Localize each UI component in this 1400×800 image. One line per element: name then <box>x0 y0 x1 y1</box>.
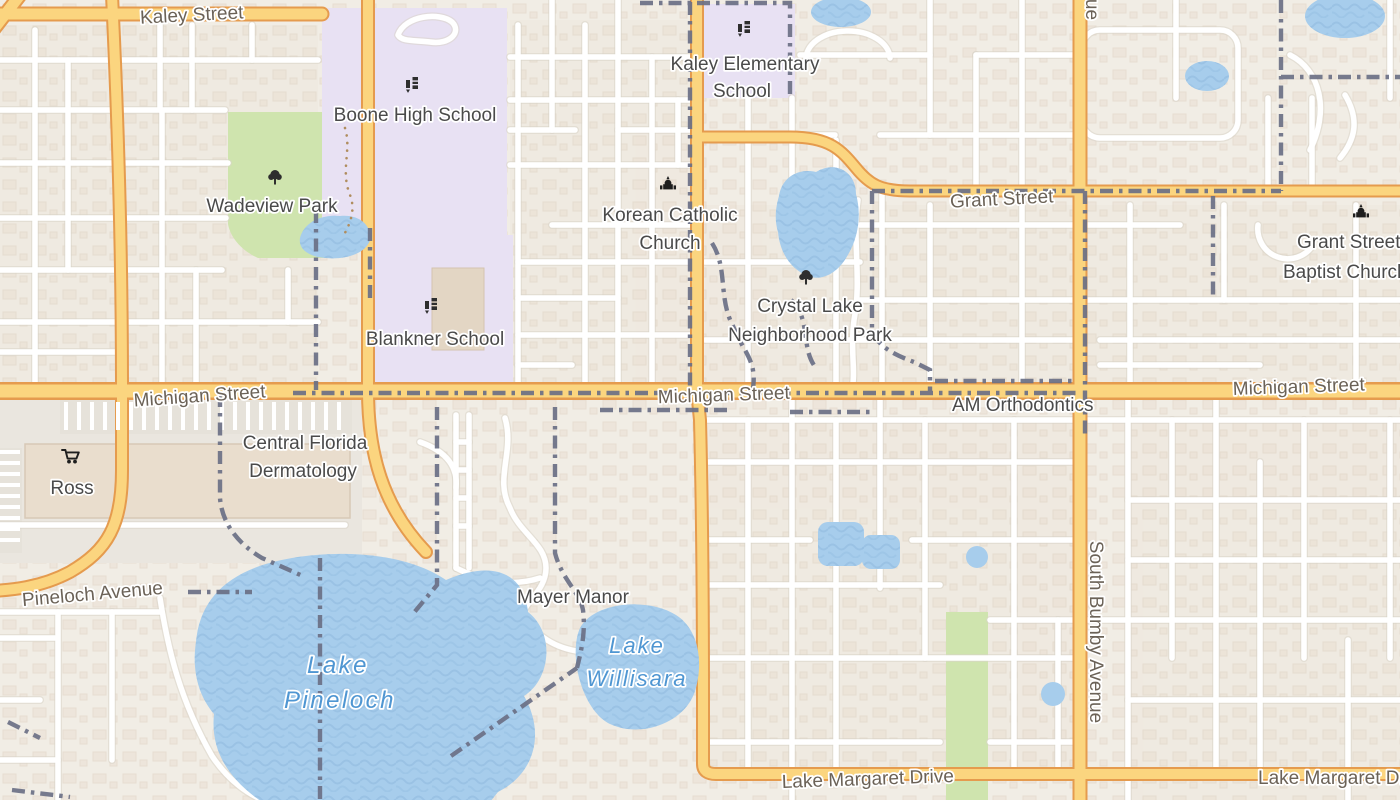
label-am-orthodontics: AM Orthodontics <box>952 395 1094 416</box>
svg-text:Neighborhood Park: Neighborhood Park <box>728 325 892 346</box>
label-mayer-manor: Mayer Manor <box>517 587 630 608</box>
label-ross: Ross <box>50 478 93 499</box>
label-grant-street-baptist: Grant Street <box>1297 232 1400 253</box>
label-lake-willisara: Lake <box>609 633 665 658</box>
label-blankner-school: Blankner School <box>366 329 504 350</box>
label-korean-catholic-church: Korean Catholic <box>602 205 737 226</box>
svg-text:Pineloch: Pineloch <box>284 687 396 714</box>
svg-text:Dermatology: Dermatology <box>249 461 357 482</box>
map-canvas[interactable]: Kaley Street Boone High School Wadeview … <box>0 0 1400 800</box>
map-svg: Kaley Street Boone High School Wadeview … <box>0 0 1400 800</box>
label-south-bumby-avenue: South Bumby Avenue <box>1085 541 1106 723</box>
label-central-florida-dermatology: Central Florida <box>243 433 368 454</box>
svg-text:Church: Church <box>639 233 700 254</box>
label-lake-pineloch: Lake <box>307 652 369 679</box>
label-avenue-partial: Avenue <box>1081 0 1102 20</box>
label-boone-high-school: Boone High School <box>334 105 497 126</box>
svg-text:Willisara: Willisara <box>587 666 688 691</box>
label-lake-margaret-drive-east: Lake Margaret Drive <box>1258 768 1400 789</box>
label-wadeview-park: Wadeview Park <box>206 196 338 217</box>
pond <box>1041 682 1065 706</box>
svg-text:School: School <box>713 81 771 102</box>
svg-text:Baptist Church: Baptist Church <box>1283 262 1400 283</box>
pond <box>966 546 988 568</box>
label-kaley-elementary: Kaley Elementary <box>671 54 820 75</box>
label-crystal-lake-park: Crystal Lake <box>757 296 863 317</box>
